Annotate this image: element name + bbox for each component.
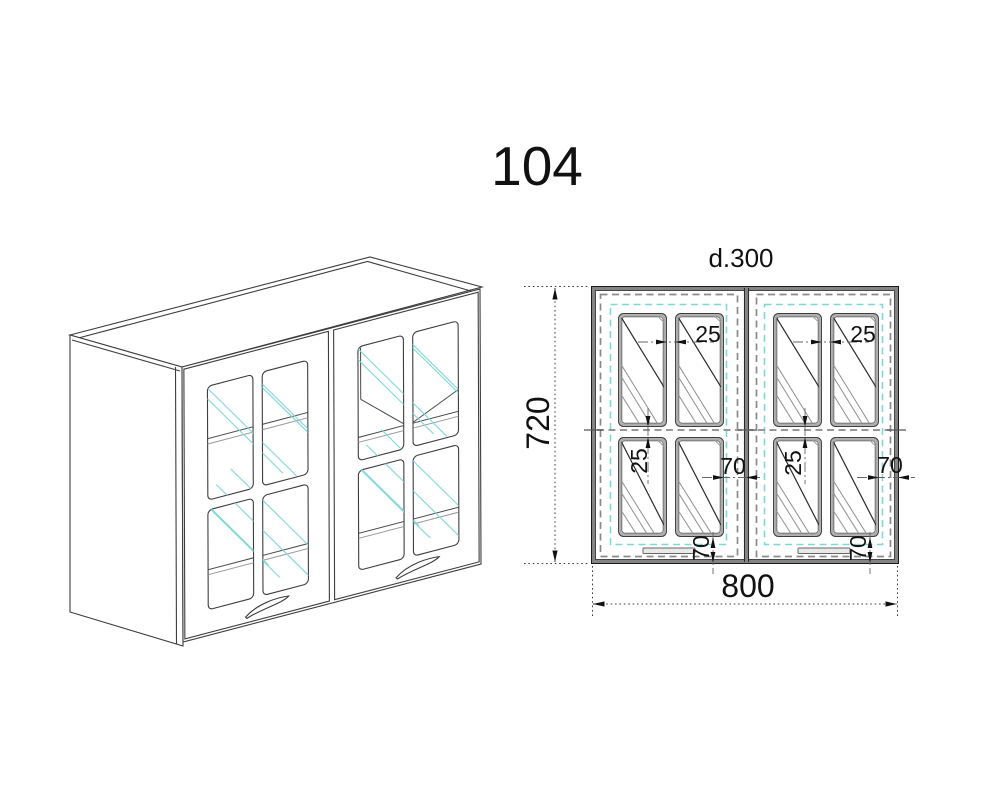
bottom-offset-dim-left: 70 [688,532,715,574]
height-dimension-label: 720 [520,396,556,449]
edge-offset-label-left: 70 [720,453,746,479]
drawing-sheet: 104 [0,0,1000,800]
cabinet-left-face [70,335,183,646]
width-dimension: 800 [593,566,898,617]
front-elevation-view: d.300 720 800 25 [520,243,915,617]
pane-gap-label-right-mid: 25 [780,450,806,476]
depth-dimension-label: d.300 [708,243,773,273]
height-dimension: 720 [520,287,590,564]
bottom-offset-label-left: 70 [688,535,714,561]
pane-gap-label-left-top: 25 [695,321,721,347]
edge-offset-label-right: 70 [877,452,903,478]
pane-gap-label-left-mid: 25 [626,448,652,474]
pane-gap-label-right-top: 25 [850,321,876,347]
width-dimension-label: 800 [721,568,774,604]
door-split [744,288,748,562]
bottom-offset-label-right: 70 [845,535,871,561]
page-title: 104 [491,135,583,197]
cabinet-3d-view [70,257,505,646]
bottom-offset-dim-right: 70 [845,532,872,574]
cad-drawing: 104 [0,0,1000,800]
right-door-handle [798,548,850,554]
